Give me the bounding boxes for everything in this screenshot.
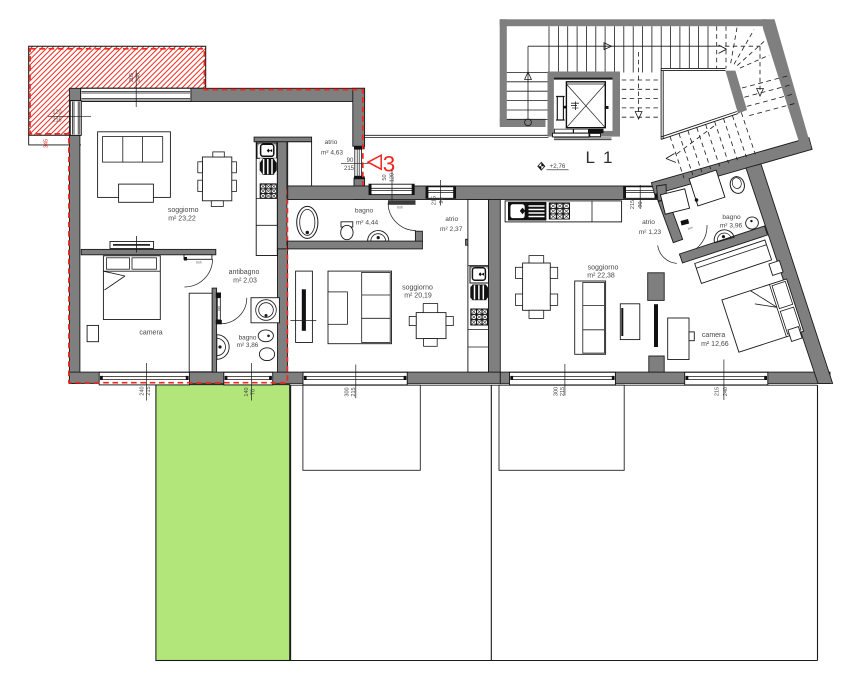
svg-text:140: 140 bbox=[244, 387, 250, 396]
svg-text:m² 22,38: m² 22,38 bbox=[587, 273, 615, 280]
svg-text:camera: camera bbox=[139, 330, 162, 337]
svg-text:120: 120 bbox=[52, 110, 61, 116]
svg-text:m² 3,86: m² 3,86 bbox=[237, 342, 259, 349]
svg-text:bxh: bxh bbox=[217, 306, 221, 311]
svg-text:m² 12,66: m² 12,66 bbox=[701, 341, 729, 348]
svg-text:70: 70 bbox=[251, 389, 257, 395]
svg-text:soggiorno: soggiorno bbox=[402, 285, 433, 292]
svg-text:215: 215 bbox=[630, 200, 636, 209]
svg-text:+2,76: +2,76 bbox=[550, 163, 566, 170]
svg-text:215: 215 bbox=[52, 118, 61, 124]
svg-text:345: 345 bbox=[44, 139, 50, 148]
svg-text:m² 4,44: m² 4,44 bbox=[356, 220, 379, 227]
svg-text:bagno: bagno bbox=[722, 214, 741, 221]
svg-text:bagno: bagno bbox=[355, 208, 374, 215]
svg-text:atrio: atrio bbox=[445, 216, 458, 223]
svg-text:bxh: bxh bbox=[196, 261, 201, 265]
svg-text:atrio: atrio bbox=[642, 219, 655, 226]
svg-text:camera: camera bbox=[702, 332, 725, 339]
svg-text:215: 215 bbox=[146, 386, 152, 395]
svg-text:m² 23,22: m² 23,22 bbox=[168, 216, 196, 223]
svg-text:205: 205 bbox=[129, 73, 135, 82]
svg-text:3: 3 bbox=[383, 151, 396, 176]
svg-text:bxh: bxh bbox=[397, 206, 402, 210]
svg-text:215: 215 bbox=[351, 387, 357, 396]
svg-text:50: 50 bbox=[382, 174, 388, 180]
svg-text:215: 215 bbox=[432, 196, 438, 205]
svg-text:240: 240 bbox=[136, 73, 142, 82]
svg-text:atrio: atrio bbox=[325, 139, 338, 146]
svg-text:215: 215 bbox=[714, 387, 720, 396]
svg-text:m² 3,96: m² 3,96 bbox=[720, 223, 743, 230]
svg-text:m² 2,03: m² 2,03 bbox=[233, 278, 257, 285]
svg-text:120: 120 bbox=[390, 173, 396, 182]
svg-text:215: 215 bbox=[560, 387, 566, 396]
svg-text:m² 4,63: m² 4,63 bbox=[321, 150, 343, 157]
svg-text:90: 90 bbox=[638, 201, 644, 207]
svg-text:soggiorno: soggiorno bbox=[588, 265, 619, 272]
svg-text:L 1: L 1 bbox=[585, 148, 614, 167]
svg-text:215: 215 bbox=[344, 166, 355, 172]
svg-text:240: 240 bbox=[723, 387, 729, 396]
svg-text:m² 20,19: m² 20,19 bbox=[404, 293, 432, 300]
svg-text:antibagno: antibagno bbox=[229, 269, 260, 276]
svg-text:300: 300 bbox=[554, 387, 560, 396]
svg-text:m² 1,23: m² 1,23 bbox=[639, 229, 662, 236]
svg-text:90: 90 bbox=[439, 197, 445, 203]
svg-text:300: 300 bbox=[344, 387, 350, 396]
svg-text:m² 2,37: m² 2,37 bbox=[440, 226, 463, 233]
svg-text:bagno: bagno bbox=[239, 335, 257, 342]
svg-text:240: 240 bbox=[139, 386, 145, 395]
svg-text:soggiorno: soggiorno bbox=[168, 207, 199, 214]
